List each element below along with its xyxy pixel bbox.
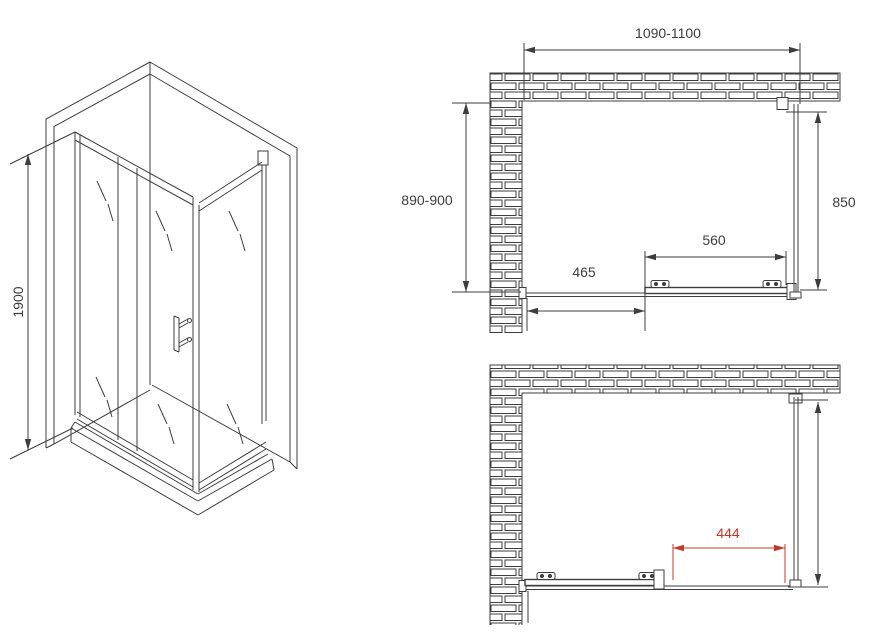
iso-height-label: 1900 bbox=[11, 285, 25, 319]
wall-depth-label: 890-900 bbox=[381, 193, 473, 207]
iso-walls bbox=[46, 62, 297, 469]
plan2-side-panel bbox=[789, 394, 802, 587]
overall-width-label: 1090-1100 bbox=[594, 26, 742, 40]
iso-frame bbox=[75, 132, 268, 492]
plan1-side-panel bbox=[777, 98, 801, 299]
fixed-panel-label: 465 bbox=[554, 265, 614, 279]
plan-view-open bbox=[490, 365, 840, 625]
plan-view-closed bbox=[452, 43, 840, 333]
side-panel-label: 850 bbox=[822, 195, 866, 209]
shower-enclosure-technical-drawing: 1900 1090-1100 890-900 850 560 465 444 bbox=[0, 0, 871, 640]
opening-width-label: 444 bbox=[698, 526, 758, 540]
door-handle bbox=[174, 316, 192, 352]
line-art bbox=[0, 0, 871, 640]
sliding-door-label: 560 bbox=[684, 233, 744, 247]
plan2-dimensions bbox=[673, 400, 828, 587]
plan1-door-assembly bbox=[519, 281, 796, 300]
isometric-view bbox=[10, 62, 297, 515]
plan2-door-assembly bbox=[519, 570, 793, 623]
